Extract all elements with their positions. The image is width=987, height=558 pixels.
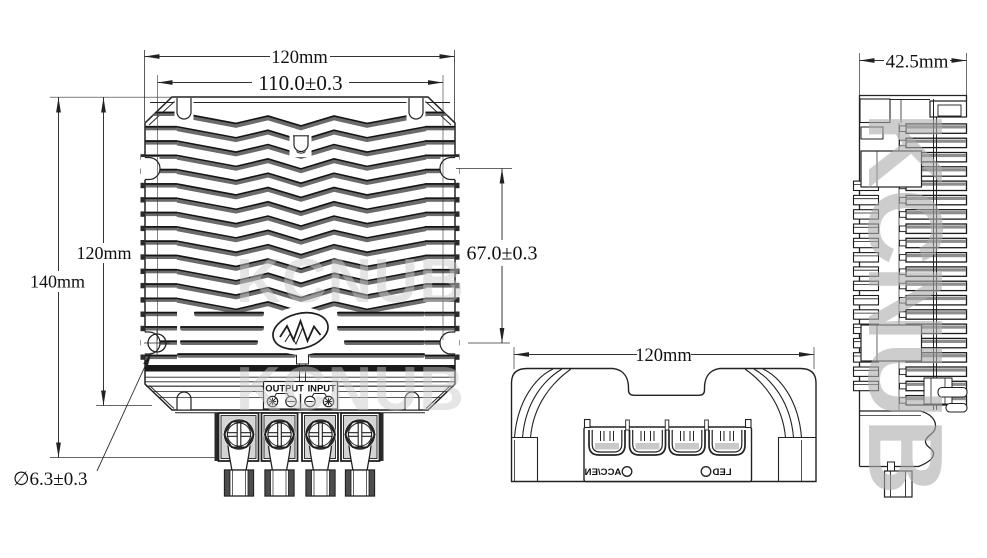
svg-text:120mm: 120mm	[271, 48, 328, 68]
svg-text:KCNUB: KCNUB	[236, 247, 465, 316]
svg-text:KCNUB: KCNUB	[846, 112, 964, 495]
svg-text:KCNUB: KCNUB	[236, 355, 465, 424]
svg-text:110.0±0.3: 110.0±0.3	[258, 71, 342, 95]
svg-text:140mm: 140mm	[30, 272, 85, 292]
svg-text:120mm: 120mm	[76, 243, 131, 263]
svg-text:ACC/EN: ACC/EN	[585, 467, 622, 478]
svg-text:67.0±0.3: 67.0±0.3	[467, 243, 538, 265]
svg-text:LED: LED	[712, 467, 731, 478]
svg-text:42.5mm: 42.5mm	[886, 52, 949, 73]
svg-text:120mm: 120mm	[635, 346, 692, 366]
svg-text:∅6.3±0.3: ∅6.3±0.3	[13, 469, 87, 490]
